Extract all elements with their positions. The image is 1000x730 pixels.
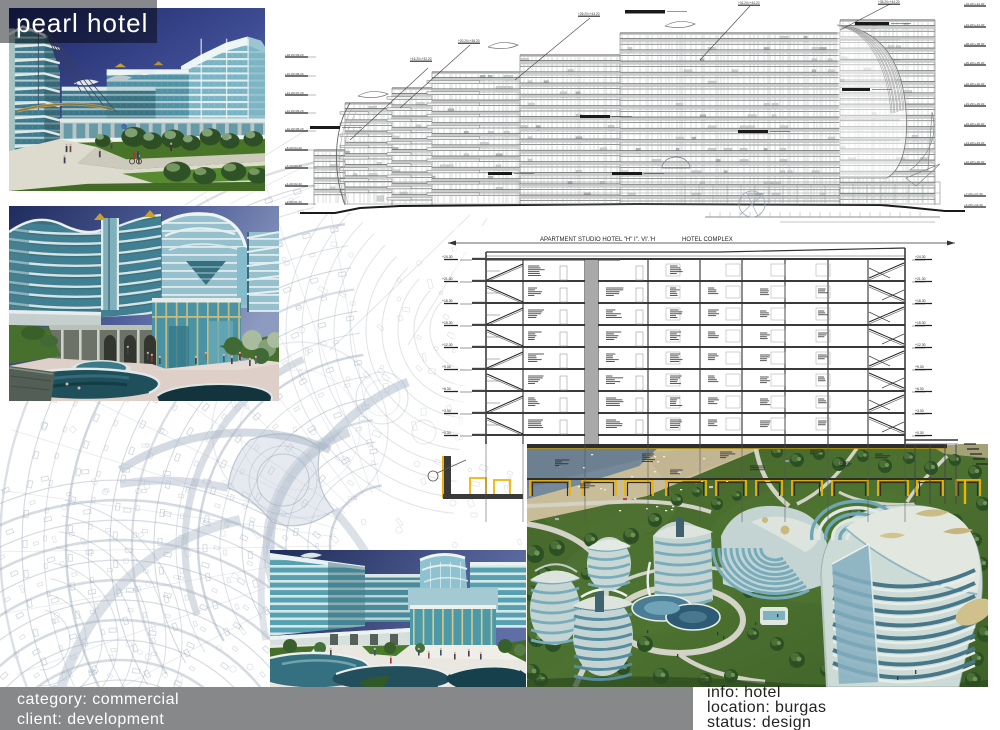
svg-text:+12.30: +12.30	[915, 343, 926, 347]
svg-text:+21.30: +21.30	[442, 277, 453, 281]
svg-text:+24.30: +24.30	[442, 255, 453, 259]
svg-text:+18.30: +18.30	[442, 299, 453, 303]
svg-text:+31.20=+44.20: +31.20=+44.20	[738, 1, 760, 5]
svg-text:+24.30: +24.30	[915, 255, 926, 259]
svg-text:+20.20=+36.20: +20.20=+36.20	[458, 39, 480, 43]
svg-text:+6.30: +6.30	[915, 387, 924, 391]
svg-text:+26.20=+43.20: +26.20=+43.20	[578, 12, 600, 16]
svg-text:+12.30: +12.30	[442, 343, 453, 347]
svg-text:+0.30: +0.30	[915, 431, 924, 435]
svg-text:+15.30: +15.30	[442, 321, 453, 325]
svg-text:+35.20=+44.20: +35.20=+44.20	[878, 0, 900, 4]
svg-text:+6.30: +6.30	[442, 387, 451, 391]
svg-text:+9.30: +9.30	[915, 365, 924, 369]
svg-text:HOTEL COMPLEX: HOTEL COMPLEX	[682, 237, 733, 243]
svg-text:APARTMENT STUDIO HOTEL "H" I".: APARTMENT STUDIO HOTEL "H" I". VI'.'H	[540, 237, 655, 243]
svg-text:+15.30: +15.30	[915, 321, 926, 325]
svg-text:+3.30: +3.30	[915, 409, 924, 413]
svg-text:+0.30: +0.30	[442, 431, 451, 435]
svg-text:+3.30: +3.30	[442, 409, 451, 413]
svg-text:+18.30: +18.30	[915, 299, 926, 303]
svg-text:+16.20=+32.20: +16.20=+32.20	[410, 57, 432, 61]
svg-text:+9.30: +9.30	[442, 365, 451, 369]
svg-text:+21.30: +21.30	[915, 277, 926, 281]
